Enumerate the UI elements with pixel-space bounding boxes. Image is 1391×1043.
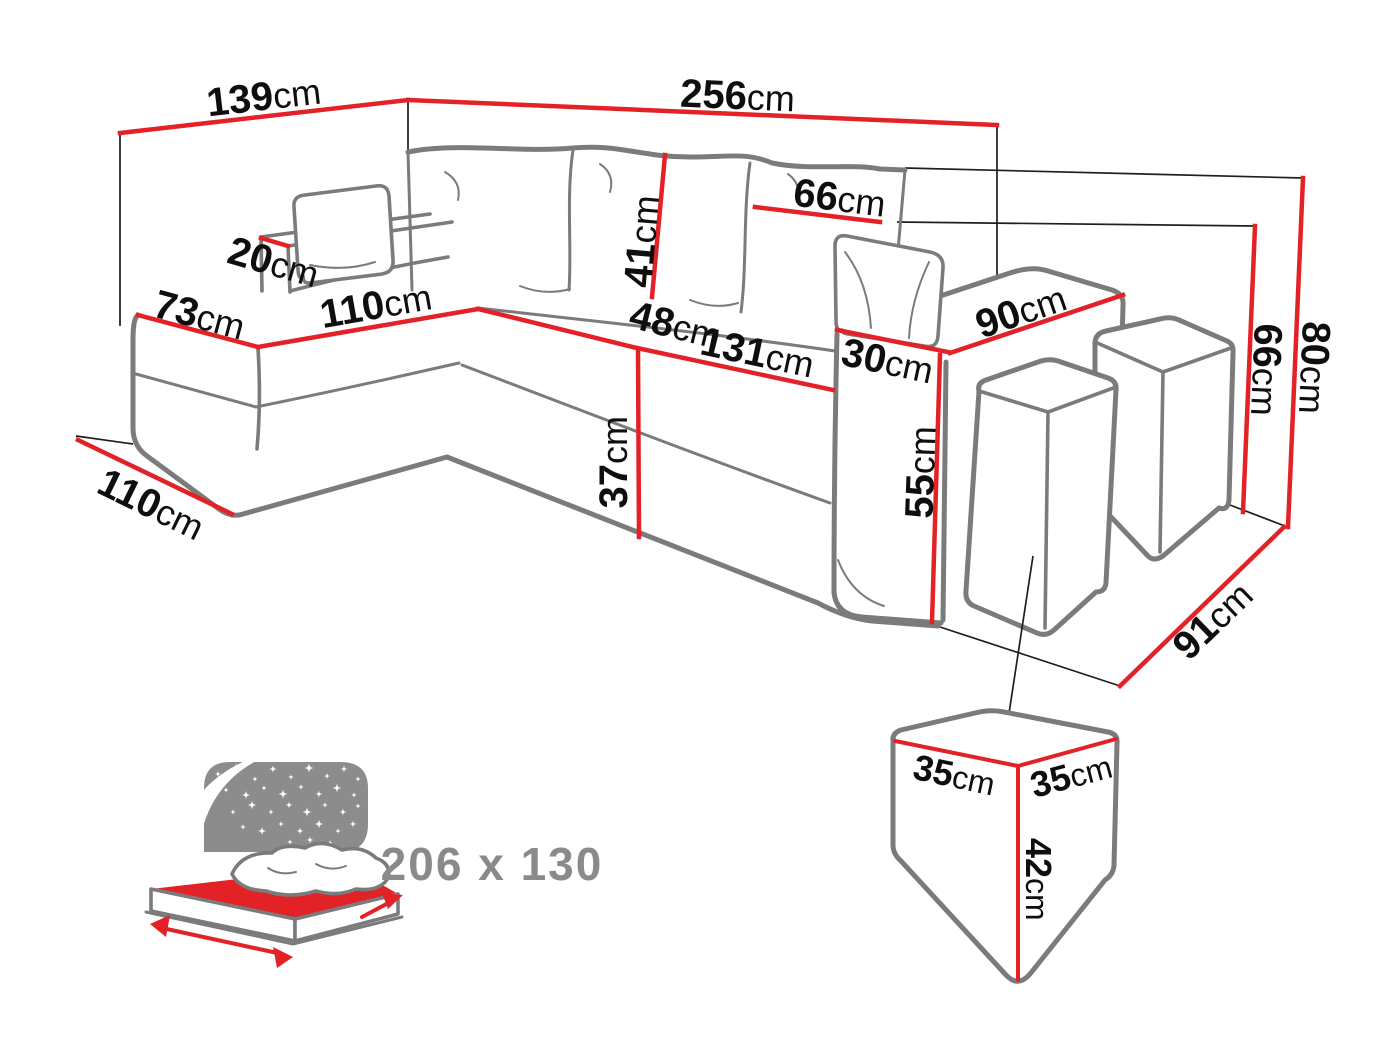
back-cushion-divider-1 — [569, 150, 573, 290]
back-cushion-divider-2 — [741, 163, 750, 312]
dimension-value: 131 — [697, 320, 771, 377]
backrest-top-edge — [408, 147, 905, 170]
dimension-label-73cm: 73 cm — [149, 282, 250, 348]
armrest-front-right-edge — [943, 362, 946, 620]
dimension-unit: cm — [746, 76, 796, 119]
extension-line-armrest-height-top — [897, 222, 1255, 226]
sleeping-function-icon — [146, 758, 403, 968]
dimension-label-139cm: 139 cm — [204, 69, 323, 126]
dimension-label-66cm-cushion: 66 cm — [791, 171, 888, 226]
dimension-value: 66 — [1244, 323, 1290, 369]
dimension-label-80cm: 80 cm — [1290, 321, 1338, 415]
sofa-dimension-diagram: 139 cm 256 cm 20 cm 73 cm 110 cm 48 cm 1… — [0, 0, 1391, 1043]
dimension-value: 66 — [791, 171, 841, 220]
dimension-value: 55 — [897, 473, 943, 519]
dimension-value: 42 — [1018, 838, 1059, 878]
chaise-base-outline — [133, 315, 938, 626]
dimension-label-37cm: 37 cm — [592, 416, 636, 509]
diagram-canvas: 139 cm 256 cm 20 cm 73 cm 110 cm 48 cm 1… — [0, 0, 1391, 1043]
stools — [966, 318, 1233, 733]
front-stool — [966, 360, 1116, 635]
dimension-label-131cm: 131 cm — [697, 320, 818, 387]
dimension-unit: cm — [594, 416, 635, 464]
dimension-unit: cm — [835, 178, 888, 225]
dimension-label-91cm: 91 cm — [1164, 573, 1261, 669]
decorative-pillow-right — [835, 236, 943, 347]
dimension-value: 37 — [592, 464, 636, 509]
dimension-unit: cm — [271, 71, 323, 117]
chaise-seam — [136, 363, 459, 407]
pouf-label-42cm: 42 cm — [1018, 838, 1059, 921]
dimension-unit: cm — [1019, 878, 1055, 921]
chaise-front-edge — [257, 348, 259, 449]
dimension-value: 110 — [317, 283, 388, 338]
dimension-label-41cm: 41 cm — [616, 193, 668, 289]
dimension-label-256cm: 256 cm — [679, 72, 795, 121]
dimension-value: 41 — [616, 241, 664, 289]
dimension-unit: cm — [192, 296, 249, 348]
dimension-unit: cm — [381, 276, 435, 325]
dimension-unit: cm — [622, 194, 667, 245]
extension-line-depth-bottom — [940, 627, 1120, 686]
dimension-line-37 — [638, 350, 639, 537]
dimension-label-66cm-height: 66 cm — [1242, 323, 1290, 417]
dimension-value: 256 — [679, 72, 748, 119]
dimension-value: 80 — [1292, 321, 1338, 367]
dimension-unit: cm — [1291, 365, 1334, 415]
dimension-label-110cm-chaise: 110 cm — [317, 274, 435, 337]
extension-line-heights-bottom — [1230, 505, 1290, 528]
dimension-label-55cm: 55 cm — [897, 425, 944, 519]
dimension-unit: cm — [1243, 367, 1286, 417]
backrest-left-edge — [408, 152, 412, 290]
dimension-value: 139 — [204, 74, 275, 125]
dimension-unit: cm — [901, 425, 944, 474]
sleeping-area-size: 206 x 130 — [381, 838, 604, 890]
armrest-front-left-edge — [834, 334, 837, 592]
bed-icon — [146, 843, 403, 968]
dimension-line-48 — [478, 309, 637, 348]
extension-line-total-height-top — [905, 168, 1303, 178]
